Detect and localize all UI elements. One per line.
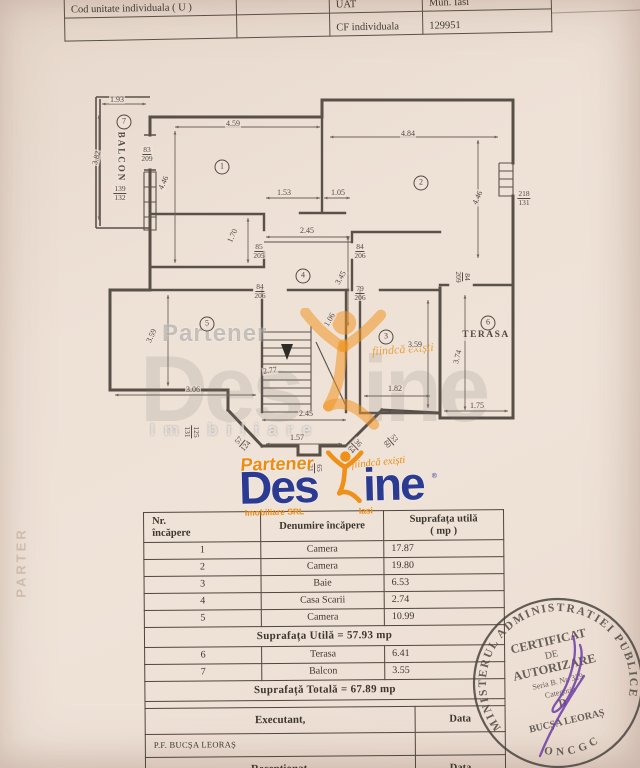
door-window-size-label: 139132 — [112, 185, 127, 201]
door-window-size-label: 218131 — [516, 190, 531, 206]
table-cell: 6 — [145, 647, 262, 665]
room-number-label: 2 — [414, 176, 429, 191]
table-cell: Camera — [261, 609, 384, 627]
watermark-imobiliare: Imobiliare — [150, 420, 320, 440]
logo-imobiliare-srl: Imobiliare SRL — [245, 506, 305, 518]
room-number-label: 7 — [117, 115, 132, 130]
table-cell: 10.99 — [384, 608, 504, 626]
table-cell — [65, 15, 237, 41]
table-cell: 2.74 — [384, 591, 504, 609]
table-cell: Suprafața Utilă = 57.93 mp — [144, 625, 504, 648]
table-row: Executant,Data — [145, 706, 505, 735]
dimension-label: 1.70 — [226, 227, 240, 245]
table-cell: CF individuala — [329, 11, 422, 36]
dimension-label: 1.53 — [276, 189, 292, 197]
table-cell: Casa Scarii — [261, 592, 384, 610]
table-cell: Data — [415, 706, 505, 733]
table-cell: Suprafața utilă ( mp ) — [383, 510, 503, 541]
destine-logo: Partener Des ine ® fiindcă exiști Imobil… — [234, 447, 466, 517]
table-cell: 4 — [144, 593, 261, 611]
table-cell: Camera — [261, 541, 384, 559]
table-cell: P.F. BUCȘA LEORAȘ — [145, 732, 415, 757]
logo-iasi: Iasi — [359, 505, 373, 515]
dimension-label: 4.84 — [400, 130, 416, 138]
dimension-label: 4.46 — [471, 189, 485, 207]
dimension-label: BALCON — [116, 131, 125, 184]
stamp-line-name: BUCȘA LEORAȘ — [528, 707, 606, 735]
dimension-label: 4.46 — [157, 174, 171, 192]
door-window-size-label: 85205 — [252, 243, 265, 259]
door-window-size-label: 84206 — [253, 283, 266, 299]
table-cell: 3.55 — [385, 662, 505, 680]
door-window-size-label: 84206 — [353, 243, 366, 259]
table-cell: 7 — [145, 664, 262, 682]
door-window-size-label: 83209 — [140, 146, 153, 162]
table-row: Suprafața Utilă = 57.93 mp — [144, 625, 504, 648]
table-cell: 1 — [144, 542, 261, 560]
stamp-line-categoria: Categoria — [544, 684, 577, 700]
table-cell: 17.87 — [384, 540, 504, 558]
room-number-label: 4 — [296, 269, 311, 284]
table-cell: Suprafață Totală = 67.89 mp — [145, 679, 505, 702]
header-rule-stub — [552, 10, 640, 13]
table-cell: 6.41 — [385, 645, 505, 663]
dimension-label: 3.45 — [333, 269, 348, 287]
stamp-line-certificat: CERTIFICAT — [509, 625, 588, 656]
stamp-line-autorizare: AUTORIZARE — [512, 651, 597, 684]
window-hatches — [144, 163, 513, 230]
table-cell: Executant, — [145, 706, 415, 734]
table-cell — [415, 732, 505, 756]
table-cell: Recepționat, — [145, 755, 415, 768]
signature — [540, 636, 584, 756]
table-cell: Balcon — [262, 663, 385, 681]
table-row: Recepționat,Data — [145, 755, 505, 768]
table-cell: 3 — [144, 576, 261, 594]
svg-text:ONCGC: ONCGC — [541, 732, 605, 763]
table-cell: 6.53 — [384, 574, 504, 592]
dimension-label: 1.05 — [330, 189, 346, 197]
table-cell: 19.80 — [384, 557, 504, 575]
logo-registered-mark: ® — [432, 473, 437, 480]
table-cell: 5 — [144, 610, 261, 628]
table-cell: Baie — [261, 575, 384, 593]
table-cell: Terasa — [262, 646, 385, 664]
room-number-label: 6 — [481, 316, 496, 331]
stamp-line-de: DE — [544, 648, 559, 662]
table-row: Suprafață Totală = 67.89 mp — [145, 679, 505, 702]
dimension-label: 1.93 — [109, 96, 125, 104]
room-number-label: 1 — [215, 160, 230, 175]
table-cell: Data — [415, 755, 505, 768]
header-table: Cod unitate individuala ( U )UATMun. Ias… — [64, 0, 553, 42]
watermark-person-icon — [296, 308, 388, 436]
stamp-ring-bottom-text: ONCGC — [541, 732, 605, 763]
door-window-size-label: 79206 — [353, 285, 366, 301]
logo-des: Des — [239, 463, 319, 511]
dimension-label: 2.45 — [299, 227, 315, 235]
table-cell: Camera — [261, 558, 384, 576]
table-row: P.F. BUCȘA LEORAȘ — [145, 732, 505, 758]
table-cell: 2 — [144, 559, 261, 577]
areas-table: Nr. încăpereDenumire încăpereSuprafața u… — [143, 509, 506, 768]
scanned-cadastral-document: Cod unitate individuala ( U )UATMun. Ias… — [0, 0, 640, 768]
dimension-label: 4.59 — [225, 120, 241, 128]
stamp-line-seria: Seria B. Nr. 329 — [531, 671, 583, 691]
side-faint-text: PARTER — [14, 527, 29, 597]
dimension-label: 3.82 — [91, 149, 103, 167]
table-cell — [237, 13, 330, 38]
stamp-line-category-d: D — [557, 697, 567, 710]
table-cell: 129951 — [422, 9, 551, 34]
balcony-outline — [96, 97, 156, 228]
door-window-size-label: 84209 — [455, 270, 471, 283]
